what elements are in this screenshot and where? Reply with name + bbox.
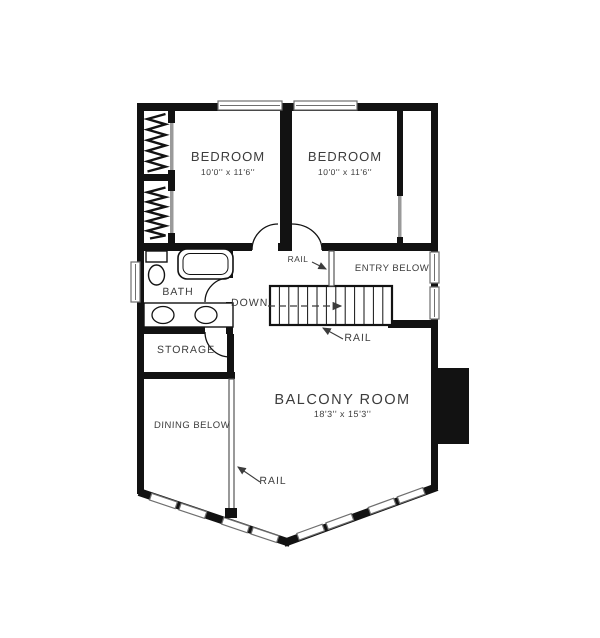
wall-entry-bottom	[388, 320, 438, 328]
floor-plan: BEDROOM 10'0'' x 11'6'' BEDROOM 10'0'' x…	[0, 0, 600, 638]
window	[368, 498, 396, 514]
balcony-room-label: BALCONY ROOM	[265, 393, 421, 409]
door-arc-bedroom-right	[292, 224, 322, 250]
storage-label: STORAGE	[144, 345, 228, 357]
rail-balcony-line	[229, 379, 234, 512]
bedroom-left-label: BEDROOM	[178, 150, 278, 164]
window	[222, 517, 250, 532]
bedroom-left-dims: 10'0'' x 11'6''	[178, 168, 278, 177]
toilet	[146, 251, 167, 285]
wall-closet-bedroom2-stub	[397, 237, 403, 251]
bedroom-right-label: BEDROOM	[295, 150, 395, 164]
vanity-sinks	[144, 303, 233, 327]
dining-below-label: DINING BELOW	[141, 421, 243, 431]
wall-closet-stub-bottom	[168, 233, 175, 245]
wall-top	[137, 103, 438, 111]
closet-door-2	[170, 191, 174, 233]
wall-storage-right	[227, 334, 234, 372]
rail-hall-label: RAIL	[283, 255, 313, 264]
wall-storage-bottom	[137, 372, 235, 379]
floor-plan-drawing	[0, 0, 600, 638]
down-label: DOWN	[231, 298, 267, 310]
door-arc-bath	[205, 278, 229, 302]
bathtub	[178, 249, 233, 279]
wall-bedroom-divider	[280, 111, 292, 250]
window	[397, 488, 425, 504]
rail-hall-leader-arrow	[312, 262, 326, 269]
rail-hall-line	[329, 251, 334, 286]
wall-hall-right	[322, 243, 431, 251]
window	[326, 514, 354, 530]
bedroom-right-dims: 10'0'' x 11'6''	[295, 168, 395, 177]
wall-between-doors	[278, 243, 292, 251]
fireplace	[438, 368, 469, 444]
rail-dining-label: RAIL	[256, 476, 290, 488]
closet-door-1	[170, 123, 174, 170]
rail-stairs-label: RAIL	[341, 333, 375, 345]
window	[251, 527, 279, 542]
wall-closet-divider	[144, 174, 175, 181]
closet-door-bedroom2	[398, 196, 402, 237]
entry-below-label: ENTRY BELOW	[349, 264, 435, 274]
window	[297, 524, 325, 540]
door-arc-bedroom-left	[252, 224, 278, 250]
wall-closet-stub-top	[168, 111, 175, 123]
window	[150, 493, 178, 508]
window	[179, 503, 207, 518]
balcony-room-dims: 18'3'' x 15'3''	[265, 410, 420, 420]
stairs	[270, 286, 392, 325]
bath-label: BATH	[152, 287, 204, 299]
rail-post	[225, 508, 237, 518]
rail-stairs-leader-arrow	[323, 328, 343, 339]
wall-closet-bedroom2	[397, 111, 403, 196]
